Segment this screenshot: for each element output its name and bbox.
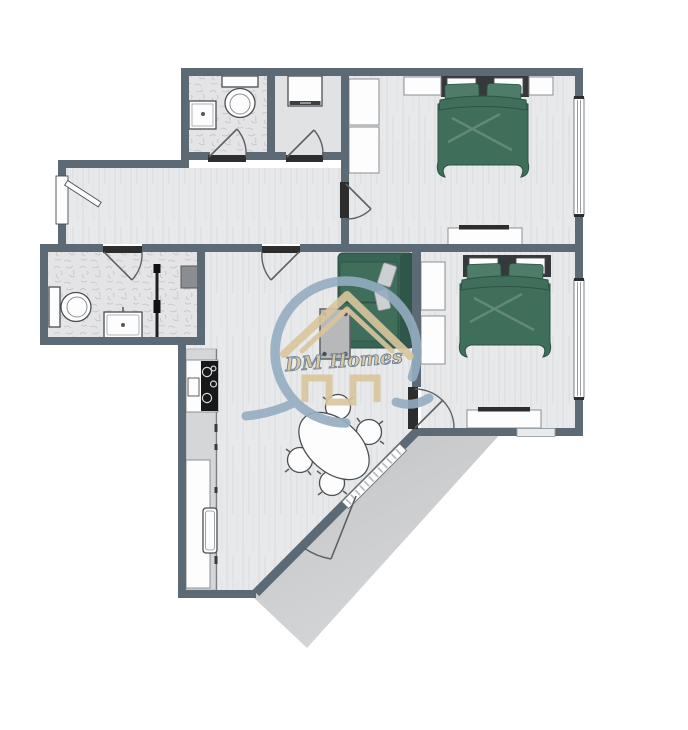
floor-plan-image: DM Homes	[0, 0, 688, 730]
dresser	[467, 410, 541, 428]
bed-2	[459, 255, 551, 357]
closet-shelf	[421, 316, 445, 364]
closet-shelf	[349, 127, 379, 173]
faucet	[121, 323, 125, 327]
bedroom-2-window	[574, 278, 584, 400]
door-bar	[208, 155, 246, 162]
toilet-bowl	[225, 89, 255, 118]
bedroom-1-window	[574, 96, 584, 217]
door-bar	[286, 155, 323, 162]
laundry-closet-fixtures	[288, 76, 322, 106]
tv	[478, 407, 530, 412]
bedroom-2-bottom-window	[517, 429, 555, 437]
faucet	[201, 112, 205, 116]
toilet-tank	[222, 76, 258, 87]
nightstand	[529, 77, 553, 95]
floor-plan-canvas: DM Homes	[0, 0, 688, 730]
door-bar	[262, 246, 300, 253]
door-bar	[103, 246, 142, 253]
bed-1	[437, 75, 529, 177]
tv	[459, 225, 509, 230]
kitchen	[186, 349, 218, 590]
hallway-floor	[66, 168, 341, 244]
stove-knob-panel	[188, 378, 199, 396]
dresser	[448, 228, 522, 246]
nightstand	[404, 77, 441, 95]
closet-shelf	[421, 262, 445, 310]
door-bar	[340, 182, 349, 218]
toilet-tank	[49, 287, 60, 327]
closet-shelf	[349, 79, 379, 125]
